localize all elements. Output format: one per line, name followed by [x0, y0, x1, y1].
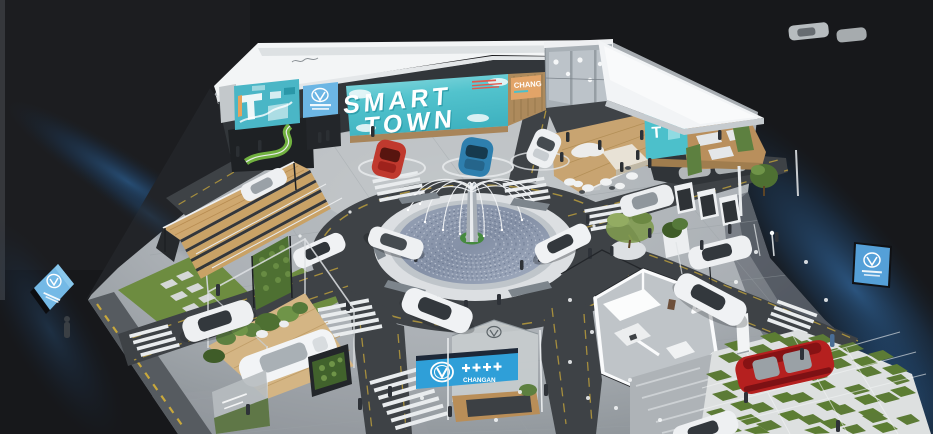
svg-text:CHANGAN: CHANGAN	[463, 377, 496, 384]
svg-text:T: T	[651, 124, 662, 142]
